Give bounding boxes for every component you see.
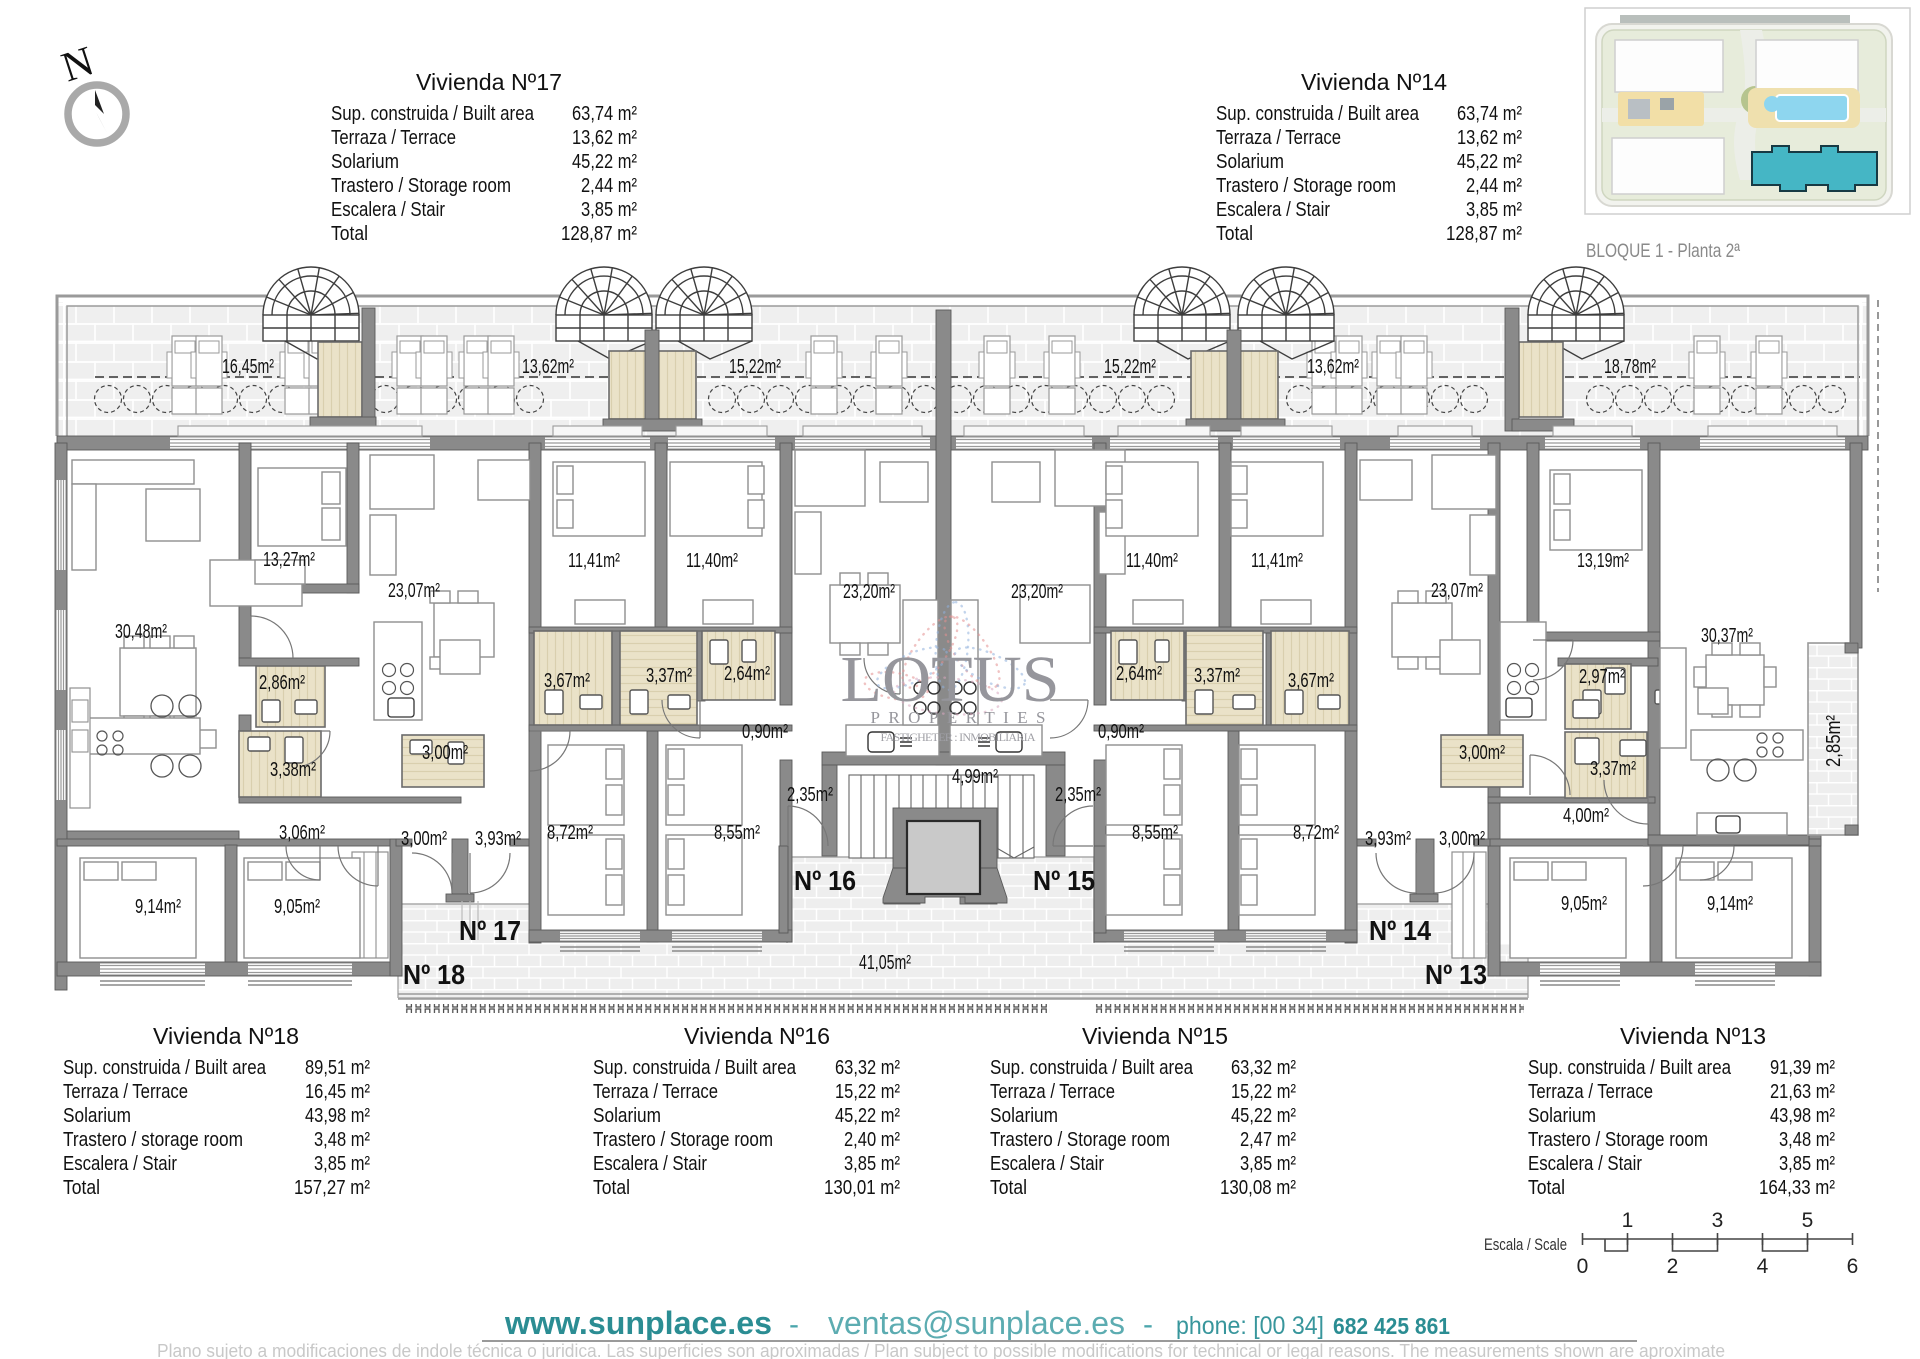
svg-text:2,44 m²: 2,44 m² xyxy=(1466,175,1522,197)
svg-text:BLOQUE 1 - Planta 2ª: BLOQUE 1 - Planta 2ª xyxy=(1586,241,1741,262)
svg-text:Terraza / Terrace: Terraza / Terrace xyxy=(1216,127,1341,149)
svg-text:Trastero / Storage room: Trastero / Storage room xyxy=(1528,1129,1708,1151)
svg-text:8,55m²: 8,55m² xyxy=(1132,822,1178,844)
svg-text:30,48m²: 30,48m² xyxy=(115,621,167,643)
svg-text:Sup. construida / Built area: Sup. construida / Built area xyxy=(63,1057,267,1079)
svg-text:13,62 m²: 13,62 m² xyxy=(572,127,637,149)
svg-text:Nº 18: Nº 18 xyxy=(403,959,465,990)
svg-text:Vivienda Nº14: Vivienda Nº14 xyxy=(1301,69,1447,95)
svg-text:9,05m²: 9,05m² xyxy=(1561,893,1607,915)
svg-text:Solarium: Solarium xyxy=(1528,1105,1596,1127)
svg-text:3,37m²: 3,37m² xyxy=(1194,665,1240,687)
svg-text:www.sunplace.es: www.sunplace.es xyxy=(504,1305,772,1341)
svg-text:91,39 m²: 91,39 m² xyxy=(1770,1057,1835,1079)
svg-text:Sup. construida / Built area: Sup. construida / Built area xyxy=(1528,1057,1732,1079)
svg-text:Vivienda Nº13: Vivienda Nº13 xyxy=(1620,1023,1766,1049)
svg-text:Nº 17: Nº 17 xyxy=(459,915,521,946)
svg-text:Escalera / Stair: Escalera / Stair xyxy=(990,1153,1104,1175)
svg-text:5: 5 xyxy=(1802,1209,1814,1232)
svg-text:Nº 13: Nº 13 xyxy=(1425,959,1487,990)
svg-text:Total: Total xyxy=(990,1177,1027,1199)
svg-text:4,99m²: 4,99m² xyxy=(952,766,998,788)
svg-text:Trastero / Storage room: Trastero / Storage room xyxy=(593,1129,773,1151)
svg-text:ventas@sunplace.es: ventas@sunplace.es xyxy=(828,1305,1125,1341)
svg-text:16,45 m²: 16,45 m² xyxy=(305,1081,370,1103)
svg-text:11,40m²: 11,40m² xyxy=(686,550,738,572)
svg-text:682 425 861: 682 425 861 xyxy=(1333,1313,1450,1339)
svg-text:63,32 m²: 63,32 m² xyxy=(1231,1057,1296,1079)
svg-text:3,85 m²: 3,85 m² xyxy=(844,1153,900,1175)
svg-text:3,37m²: 3,37m² xyxy=(1590,758,1636,780)
svg-text:9,05m²: 9,05m² xyxy=(274,896,320,918)
svg-text:2,44 m²: 2,44 m² xyxy=(581,175,637,197)
svg-text:Escalera / Stair: Escalera / Stair xyxy=(1528,1153,1642,1175)
svg-text:Terraza / Terrace: Terraza / Terrace xyxy=(1528,1081,1653,1103)
svg-text:63,32 m²: 63,32 m² xyxy=(835,1057,900,1079)
svg-text:3,38m²: 3,38m² xyxy=(270,759,316,781)
svg-text:Sup. construida / Built area: Sup. construida / Built area xyxy=(593,1057,797,1079)
svg-text:15,22m²: 15,22m² xyxy=(729,356,781,378)
svg-text:Escalera / Stair: Escalera / Stair xyxy=(593,1153,707,1175)
svg-text:Solarium: Solarium xyxy=(990,1105,1058,1127)
svg-text:0,90m²: 0,90m² xyxy=(742,721,788,743)
svg-text:Total: Total xyxy=(1216,223,1253,245)
svg-text:Total: Total xyxy=(331,223,368,245)
svg-text:23,20m²: 23,20m² xyxy=(843,581,895,603)
svg-text:23,07m²: 23,07m² xyxy=(388,580,440,602)
svg-text:11,41m²: 11,41m² xyxy=(568,550,620,572)
svg-text:2,85m²: 2,85m² xyxy=(1823,715,1845,767)
svg-text:3,48 m²: 3,48 m² xyxy=(314,1129,370,1151)
svg-text:3,85 m²: 3,85 m² xyxy=(1466,199,1522,221)
svg-text:Terraza / Terrace: Terraza / Terrace xyxy=(990,1081,1115,1103)
svg-text:63,74 m²: 63,74 m² xyxy=(1457,103,1522,125)
svg-text:phone: [00 34]: phone: [00 34] xyxy=(1176,1312,1324,1340)
svg-text:23,07m²: 23,07m² xyxy=(1431,580,1483,602)
svg-text:23,20m²: 23,20m² xyxy=(1011,581,1063,603)
svg-text:3,85 m²: 3,85 m² xyxy=(1240,1153,1296,1175)
svg-text:4: 4 xyxy=(1757,1255,1769,1278)
svg-text:Solarium: Solarium xyxy=(331,151,399,173)
svg-text:130,01 m²: 130,01 m² xyxy=(824,1177,900,1199)
svg-text:-: - xyxy=(789,1308,799,1341)
svg-text:Total: Total xyxy=(593,1177,630,1199)
svg-text:Plano sujeto a modificaciones: Plano sujeto a modificaciones de indole … xyxy=(157,1341,1725,1359)
svg-text:3,37m²: 3,37m² xyxy=(646,665,692,687)
svg-text:45,22 m²: 45,22 m² xyxy=(1231,1105,1296,1127)
svg-text:3,85 m²: 3,85 m² xyxy=(581,199,637,221)
svg-text:128,87 m²: 128,87 m² xyxy=(1446,223,1522,245)
svg-text:3,93m²: 3,93m² xyxy=(1365,828,1411,850)
svg-text:Sup. construida / Built area: Sup. construida / Built area xyxy=(990,1057,1194,1079)
svg-text:13,27m²: 13,27m² xyxy=(263,549,315,571)
svg-text:128,87 m²: 128,87 m² xyxy=(561,223,637,245)
svg-text:63,74 m²: 63,74 m² xyxy=(572,103,637,125)
svg-text:3,00m²: 3,00m² xyxy=(401,828,447,850)
svg-text:164,33 m²: 164,33 m² xyxy=(1759,1177,1835,1199)
svg-text:2,97m²: 2,97m² xyxy=(1579,666,1625,688)
svg-text:-: - xyxy=(1143,1308,1153,1341)
svg-text:11,41m²: 11,41m² xyxy=(1251,550,1303,572)
svg-text:13,19m²: 13,19m² xyxy=(1577,550,1629,572)
svg-text:Nº 15: Nº 15 xyxy=(1033,865,1095,896)
svg-text:13,62 m²: 13,62 m² xyxy=(1457,127,1522,149)
svg-text:Trastero / storage room: Trastero / storage room xyxy=(63,1129,243,1151)
svg-text:1: 1 xyxy=(1622,1209,1634,1232)
svg-text:41,05m²: 41,05m² xyxy=(859,952,911,974)
svg-text:Nº 16: Nº 16 xyxy=(794,865,856,896)
svg-text:Vivienda Nº17: Vivienda Nº17 xyxy=(416,69,562,95)
svg-text:2: 2 xyxy=(1667,1255,1679,1278)
svg-text:Solarium: Solarium xyxy=(63,1105,131,1127)
svg-text:Escalera / Stair: Escalera / Stair xyxy=(331,199,445,221)
svg-text:3,85 m²: 3,85 m² xyxy=(314,1153,370,1175)
svg-text:30,37m²: 30,37m² xyxy=(1701,625,1753,647)
svg-text:3,00m²: 3,00m² xyxy=(422,742,468,764)
svg-text:Terraza / Terrace: Terraza / Terrace xyxy=(331,127,456,149)
svg-text:15,22m²: 15,22m² xyxy=(1104,356,1156,378)
svg-text:3,00m²: 3,00m² xyxy=(1459,742,1505,764)
svg-text:3,93m²: 3,93m² xyxy=(475,828,521,850)
svg-text:2,47 m²: 2,47 m² xyxy=(1240,1129,1296,1151)
svg-text:Trastero / Storage room: Trastero / Storage room xyxy=(1216,175,1396,197)
svg-text:0,90m²: 0,90m² xyxy=(1098,721,1144,743)
svg-text:16,45m²: 16,45m² xyxy=(222,356,274,378)
svg-text:Escalera / Stair: Escalera / Stair xyxy=(1216,199,1330,221)
svg-text:9,14m²: 9,14m² xyxy=(1707,893,1753,915)
svg-text:Trastero / Storage room: Trastero / Storage room xyxy=(331,175,511,197)
svg-text:Vivienda Nº16: Vivienda Nº16 xyxy=(684,1023,830,1049)
svg-text:Sup. construida / Built area: Sup. construida / Built area xyxy=(331,103,535,125)
svg-text:3,67m²: 3,67m² xyxy=(1288,670,1334,692)
svg-text:157,27 m²: 157,27 m² xyxy=(294,1177,370,1199)
svg-text:2,35m²: 2,35m² xyxy=(787,784,833,806)
svg-text:6: 6 xyxy=(1847,1255,1859,1278)
svg-text:15,22 m²: 15,22 m² xyxy=(835,1081,900,1103)
svg-text:2,40 m²: 2,40 m² xyxy=(844,1129,900,1151)
svg-text:11,40m²: 11,40m² xyxy=(1126,550,1178,572)
svg-text:3: 3 xyxy=(1712,1209,1724,1232)
svg-text:3,85 m²: 3,85 m² xyxy=(1779,1153,1835,1175)
svg-text:2,64m²: 2,64m² xyxy=(1116,663,1162,685)
svg-text:Terraza / Terrace: Terraza / Terrace xyxy=(593,1081,718,1103)
svg-text:2,35m²: 2,35m² xyxy=(1055,784,1101,806)
svg-text:Total: Total xyxy=(63,1177,100,1199)
svg-text:Total: Total xyxy=(1528,1177,1565,1199)
svg-text:3,48 m²: 3,48 m² xyxy=(1779,1129,1835,1151)
svg-text:45,22 m²: 45,22 m² xyxy=(835,1105,900,1127)
svg-text:13,62m²: 13,62m² xyxy=(1307,356,1359,378)
svg-text:Vivienda Nº15: Vivienda Nº15 xyxy=(1082,1023,1228,1049)
svg-text:130,08 m²: 130,08 m² xyxy=(1220,1177,1296,1199)
svg-text:Terraza / Terrace: Terraza / Terrace xyxy=(63,1081,188,1103)
svg-text:Escala / Scale: Escala / Scale xyxy=(1484,1235,1567,1254)
svg-text:18,78m²: 18,78m² xyxy=(1604,356,1656,378)
svg-text:3,67m²: 3,67m² xyxy=(544,670,590,692)
svg-text:89,51 m²: 89,51 m² xyxy=(305,1057,370,1079)
svg-text:Nº 14: Nº 14 xyxy=(1369,915,1431,946)
svg-text:8,72m²: 8,72m² xyxy=(547,822,593,844)
svg-text:13,62m²: 13,62m² xyxy=(522,356,574,378)
svg-text:8,72m²: 8,72m² xyxy=(1293,822,1339,844)
svg-text:3,00m²: 3,00m² xyxy=(1439,828,1485,850)
svg-text:0: 0 xyxy=(1577,1255,1589,1278)
svg-text:FASTIGHETER : INMOBILIARIA: FASTIGHETER : INMOBILIARIA xyxy=(881,730,1036,744)
svg-text:45,22 m²: 45,22 m² xyxy=(572,151,637,173)
svg-text:Solarium: Solarium xyxy=(1216,151,1284,173)
svg-text:43,98 m²: 43,98 m² xyxy=(305,1105,370,1127)
svg-text:Escalera / Stair: Escalera / Stair xyxy=(63,1153,177,1175)
svg-text:Solarium: Solarium xyxy=(593,1105,661,1127)
svg-text:2,86m²: 2,86m² xyxy=(259,672,305,694)
svg-text:45,22 m²: 45,22 m² xyxy=(1457,151,1522,173)
svg-text:Trastero / Storage room: Trastero / Storage room xyxy=(990,1129,1170,1151)
svg-text:9,14m²: 9,14m² xyxy=(135,896,181,918)
svg-text:Vivienda Nº18: Vivienda Nº18 xyxy=(153,1023,299,1049)
svg-text:3,06m²: 3,06m² xyxy=(279,822,325,844)
svg-text:8,55m²: 8,55m² xyxy=(714,822,760,844)
svg-text:21,63 m²: 21,63 m² xyxy=(1770,1081,1835,1103)
svg-text:Sup. construida / Built area: Sup. construida / Built area xyxy=(1216,103,1420,125)
svg-text:43,98 m²: 43,98 m² xyxy=(1770,1105,1835,1127)
svg-text:LOTUS: LOTUS xyxy=(841,643,1060,716)
svg-text:15,22 m²: 15,22 m² xyxy=(1231,1081,1296,1103)
svg-text:2,64m²: 2,64m² xyxy=(724,663,770,685)
svg-text:4,00m²: 4,00m² xyxy=(1563,805,1609,827)
